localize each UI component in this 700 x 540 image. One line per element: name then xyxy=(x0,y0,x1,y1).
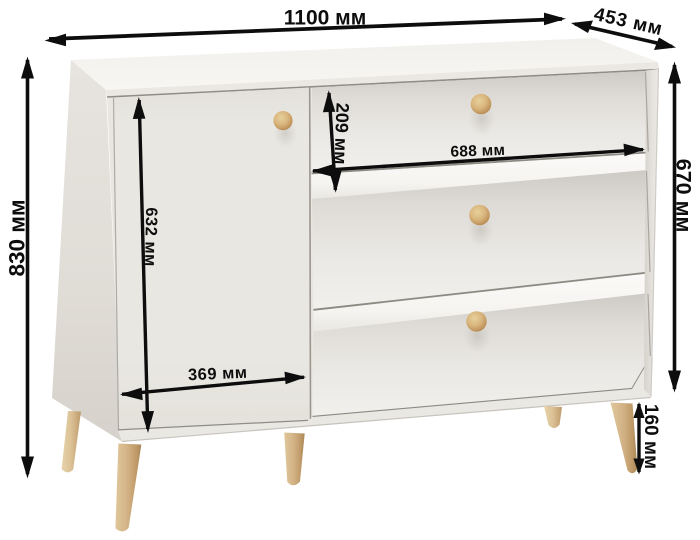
svg-text:209 мм: 209 мм xyxy=(330,103,352,165)
svg-text:160 мм: 160 мм xyxy=(640,404,661,469)
svg-text:369 мм: 369 мм xyxy=(188,364,248,385)
svg-text:688 мм: 688 мм xyxy=(450,142,505,161)
svg-text:830 мм: 830 мм xyxy=(4,199,29,276)
svg-text:632 мм: 632 мм xyxy=(141,207,160,267)
svg-text:670 мм: 670 мм xyxy=(672,159,696,233)
svg-text:1100 мм: 1100 мм xyxy=(284,7,366,30)
